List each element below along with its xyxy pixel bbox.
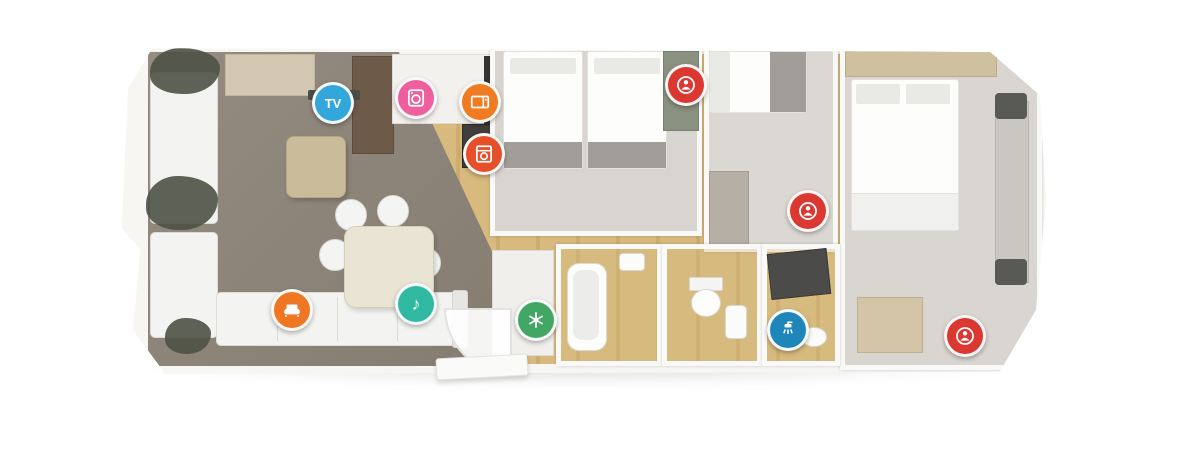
shower-room bbox=[762, 244, 840, 366]
washing-machine-icon bbox=[395, 77, 437, 119]
shower-counter bbox=[767, 248, 831, 300]
overhead-locker bbox=[845, 51, 997, 77]
kitchen-tall-unit bbox=[352, 56, 394, 154]
cushion-divider bbox=[337, 297, 338, 341]
dining-chair bbox=[377, 195, 409, 227]
bed-space-icon bbox=[787, 190, 829, 232]
tv-icon-label: TV bbox=[325, 97, 342, 110]
music-system-icon: ♪ bbox=[395, 283, 437, 325]
tv-icon: TV bbox=[312, 82, 354, 124]
pillow bbox=[594, 58, 660, 74]
bed-space-glyph bbox=[797, 200, 819, 222]
pillow bbox=[510, 58, 576, 74]
bathroom bbox=[556, 244, 662, 366]
bed-space-glyph bbox=[954, 325, 976, 347]
bed-space-icon bbox=[944, 315, 986, 357]
wash-basin bbox=[619, 253, 645, 271]
shower-icon bbox=[767, 309, 809, 351]
coffee-table bbox=[286, 136, 346, 198]
sofa-bed-glyph bbox=[281, 299, 303, 321]
caravan-shell bbox=[118, 40, 1048, 378]
microwave-icon bbox=[459, 81, 501, 123]
oven-glyph bbox=[473, 143, 495, 165]
window-seat bbox=[995, 101, 1029, 283]
pillow bbox=[710, 52, 730, 112]
bathtub bbox=[567, 263, 607, 351]
wash-basin bbox=[725, 305, 747, 339]
bed-space-icon bbox=[665, 64, 707, 106]
single-bed bbox=[709, 51, 807, 113]
double-bed bbox=[851, 79, 959, 231]
toilet bbox=[691, 289, 721, 317]
shower-glyph bbox=[777, 319, 799, 341]
single-bed bbox=[503, 51, 583, 169]
snowflake-glyph bbox=[525, 309, 547, 331]
vanity-unit bbox=[857, 297, 923, 353]
floor-plan-canvas: TV bbox=[0, 0, 1200, 451]
blanket bbox=[588, 142, 666, 168]
master-bedroom bbox=[840, 46, 1042, 370]
wc-room bbox=[662, 244, 762, 366]
blanket bbox=[504, 142, 582, 168]
blanket bbox=[770, 52, 806, 112]
pillow bbox=[856, 84, 900, 104]
microwave-glyph bbox=[469, 91, 491, 113]
sideboard bbox=[225, 54, 315, 96]
seat-cushion bbox=[995, 259, 1027, 285]
single-bed bbox=[587, 51, 667, 169]
pillow bbox=[906, 84, 950, 104]
sofa-bed-icon bbox=[271, 289, 313, 331]
oven-icon bbox=[463, 133, 505, 175]
music-glyph: ♪ bbox=[412, 295, 421, 313]
bathtub-basin bbox=[573, 270, 599, 340]
bed-space-glyph bbox=[675, 74, 697, 96]
blanket bbox=[852, 193, 958, 230]
washing-machine-glyph bbox=[405, 87, 427, 109]
wardrobe bbox=[709, 171, 749, 247]
seat-cushion bbox=[995, 93, 1027, 119]
fridge-freezer-icon bbox=[515, 299, 557, 341]
